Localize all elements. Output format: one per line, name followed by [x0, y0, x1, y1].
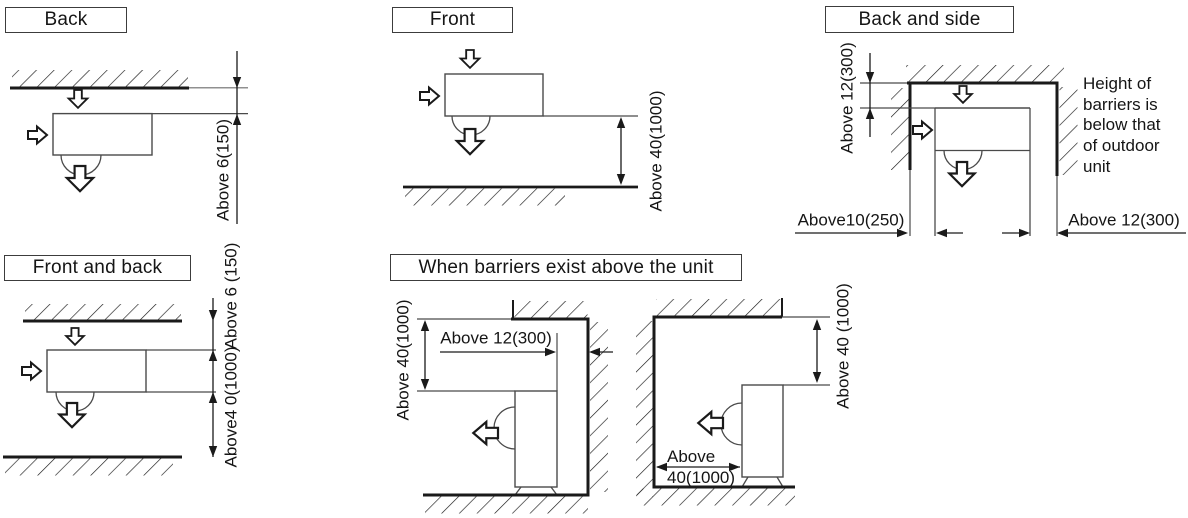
dim-arrowhead [897, 229, 908, 237]
airflow-right-icon [913, 122, 932, 139]
front-and-back-bottom-clearance-label: Above4 0(1000) [223, 347, 240, 468]
outdoor-unit [53, 114, 152, 155]
back-and-side-right-clearance-label: Above 12(300) [1068, 212, 1180, 229]
wall-hatch [12, 70, 188, 87]
dim-arrowhead [209, 392, 217, 403]
dim-arrowhead [866, 108, 874, 119]
dim-arrowhead [656, 463, 667, 471]
fan-arc [721, 403, 742, 445]
left-wall-hatch [891, 88, 909, 170]
barriers-right-bottom-clearance-label: Above 40(1000) [667, 447, 735, 488]
dim-arrowhead [545, 348, 556, 356]
panel-title-back: Back [5, 7, 127, 33]
dim-arrowhead [813, 372, 821, 383]
barrier-top-hatch [515, 301, 588, 318]
left-wall-hatch [636, 321, 653, 497]
outdoor-unit [515, 391, 557, 487]
ground-hatch [5, 459, 173, 476]
dim-arrowhead [617, 117, 625, 128]
right-wall-hatch [590, 322, 608, 492]
panel-title-back-and-side: Back and side [825, 6, 1014, 33]
dim-arrowhead [813, 319, 821, 330]
airflow-down-icon [954, 86, 972, 103]
airflow-right-icon [22, 363, 41, 380]
dim-arrowhead [617, 174, 625, 185]
barriers-left-horizontal-clearance-label: Above 12(300) [440, 330, 552, 347]
panel-title-barriers-above: When barriers exist above the unit [390, 254, 742, 281]
panel-front-and-back [3, 298, 217, 476]
back-clearance-label: Above 6(150) [215, 119, 232, 221]
airflow-left-icon [698, 412, 723, 434]
back-and-side-top-clearance-label: Above 12(300) [839, 42, 856, 154]
dim-arrowhead [209, 446, 217, 457]
ground-hatch [637, 489, 795, 506]
dim-arrowhead [421, 379, 429, 390]
dim-arrowhead [233, 77, 241, 88]
dim-arrowhead [866, 72, 874, 83]
dim-arrowhead [209, 350, 217, 361]
right-wall-hatch [1060, 87, 1078, 175]
dim-arrowhead [209, 310, 217, 321]
panel-title-front: Front [392, 7, 513, 33]
outdoor-unit [47, 350, 146, 392]
airflow-down-icon [69, 90, 88, 108]
barrier-height-note: Height of barriers is below that of outd… [1083, 74, 1161, 178]
clearance-diagram-sheet: Back Front Back and side Front and back … [0, 0, 1188, 518]
panel-front [403, 50, 638, 206]
front-and-back-top-clearance-label: Above 6 (150) [223, 243, 240, 350]
airflow-down-icon [949, 162, 974, 186]
ceiling-hatch [656, 299, 781, 316]
front-clearance-label: Above 40(1000) [648, 91, 665, 212]
airflow-right-icon [420, 88, 439, 105]
airflow-down-icon [67, 166, 93, 191]
dim-arrowhead [421, 320, 429, 331]
barriers-right-vertical-clearance-label: Above 40 (1000) [835, 283, 852, 409]
panel-title-front-and-back: Front and back [4, 255, 191, 281]
barrier-top-hatch [906, 65, 1064, 82]
outdoor-unit [742, 385, 783, 477]
airflow-right-icon [28, 127, 47, 144]
outdoor-unit [445, 74, 543, 116]
ground-hatch [405, 189, 565, 206]
dim-arrowhead [1019, 229, 1030, 237]
airflow-down-icon [66, 328, 84, 345]
airflow-down-icon [461, 50, 480, 68]
ground-hatch [425, 497, 588, 514]
panel-back [10, 51, 248, 224]
dim-arrowhead [233, 114, 241, 125]
back-and-side-left-clearance-label: Above10(250) [798, 212, 905, 229]
ceiling-hatch [25, 304, 181, 320]
barriers-left-vertical-clearance-label: Above 40(1000) [395, 300, 412, 421]
